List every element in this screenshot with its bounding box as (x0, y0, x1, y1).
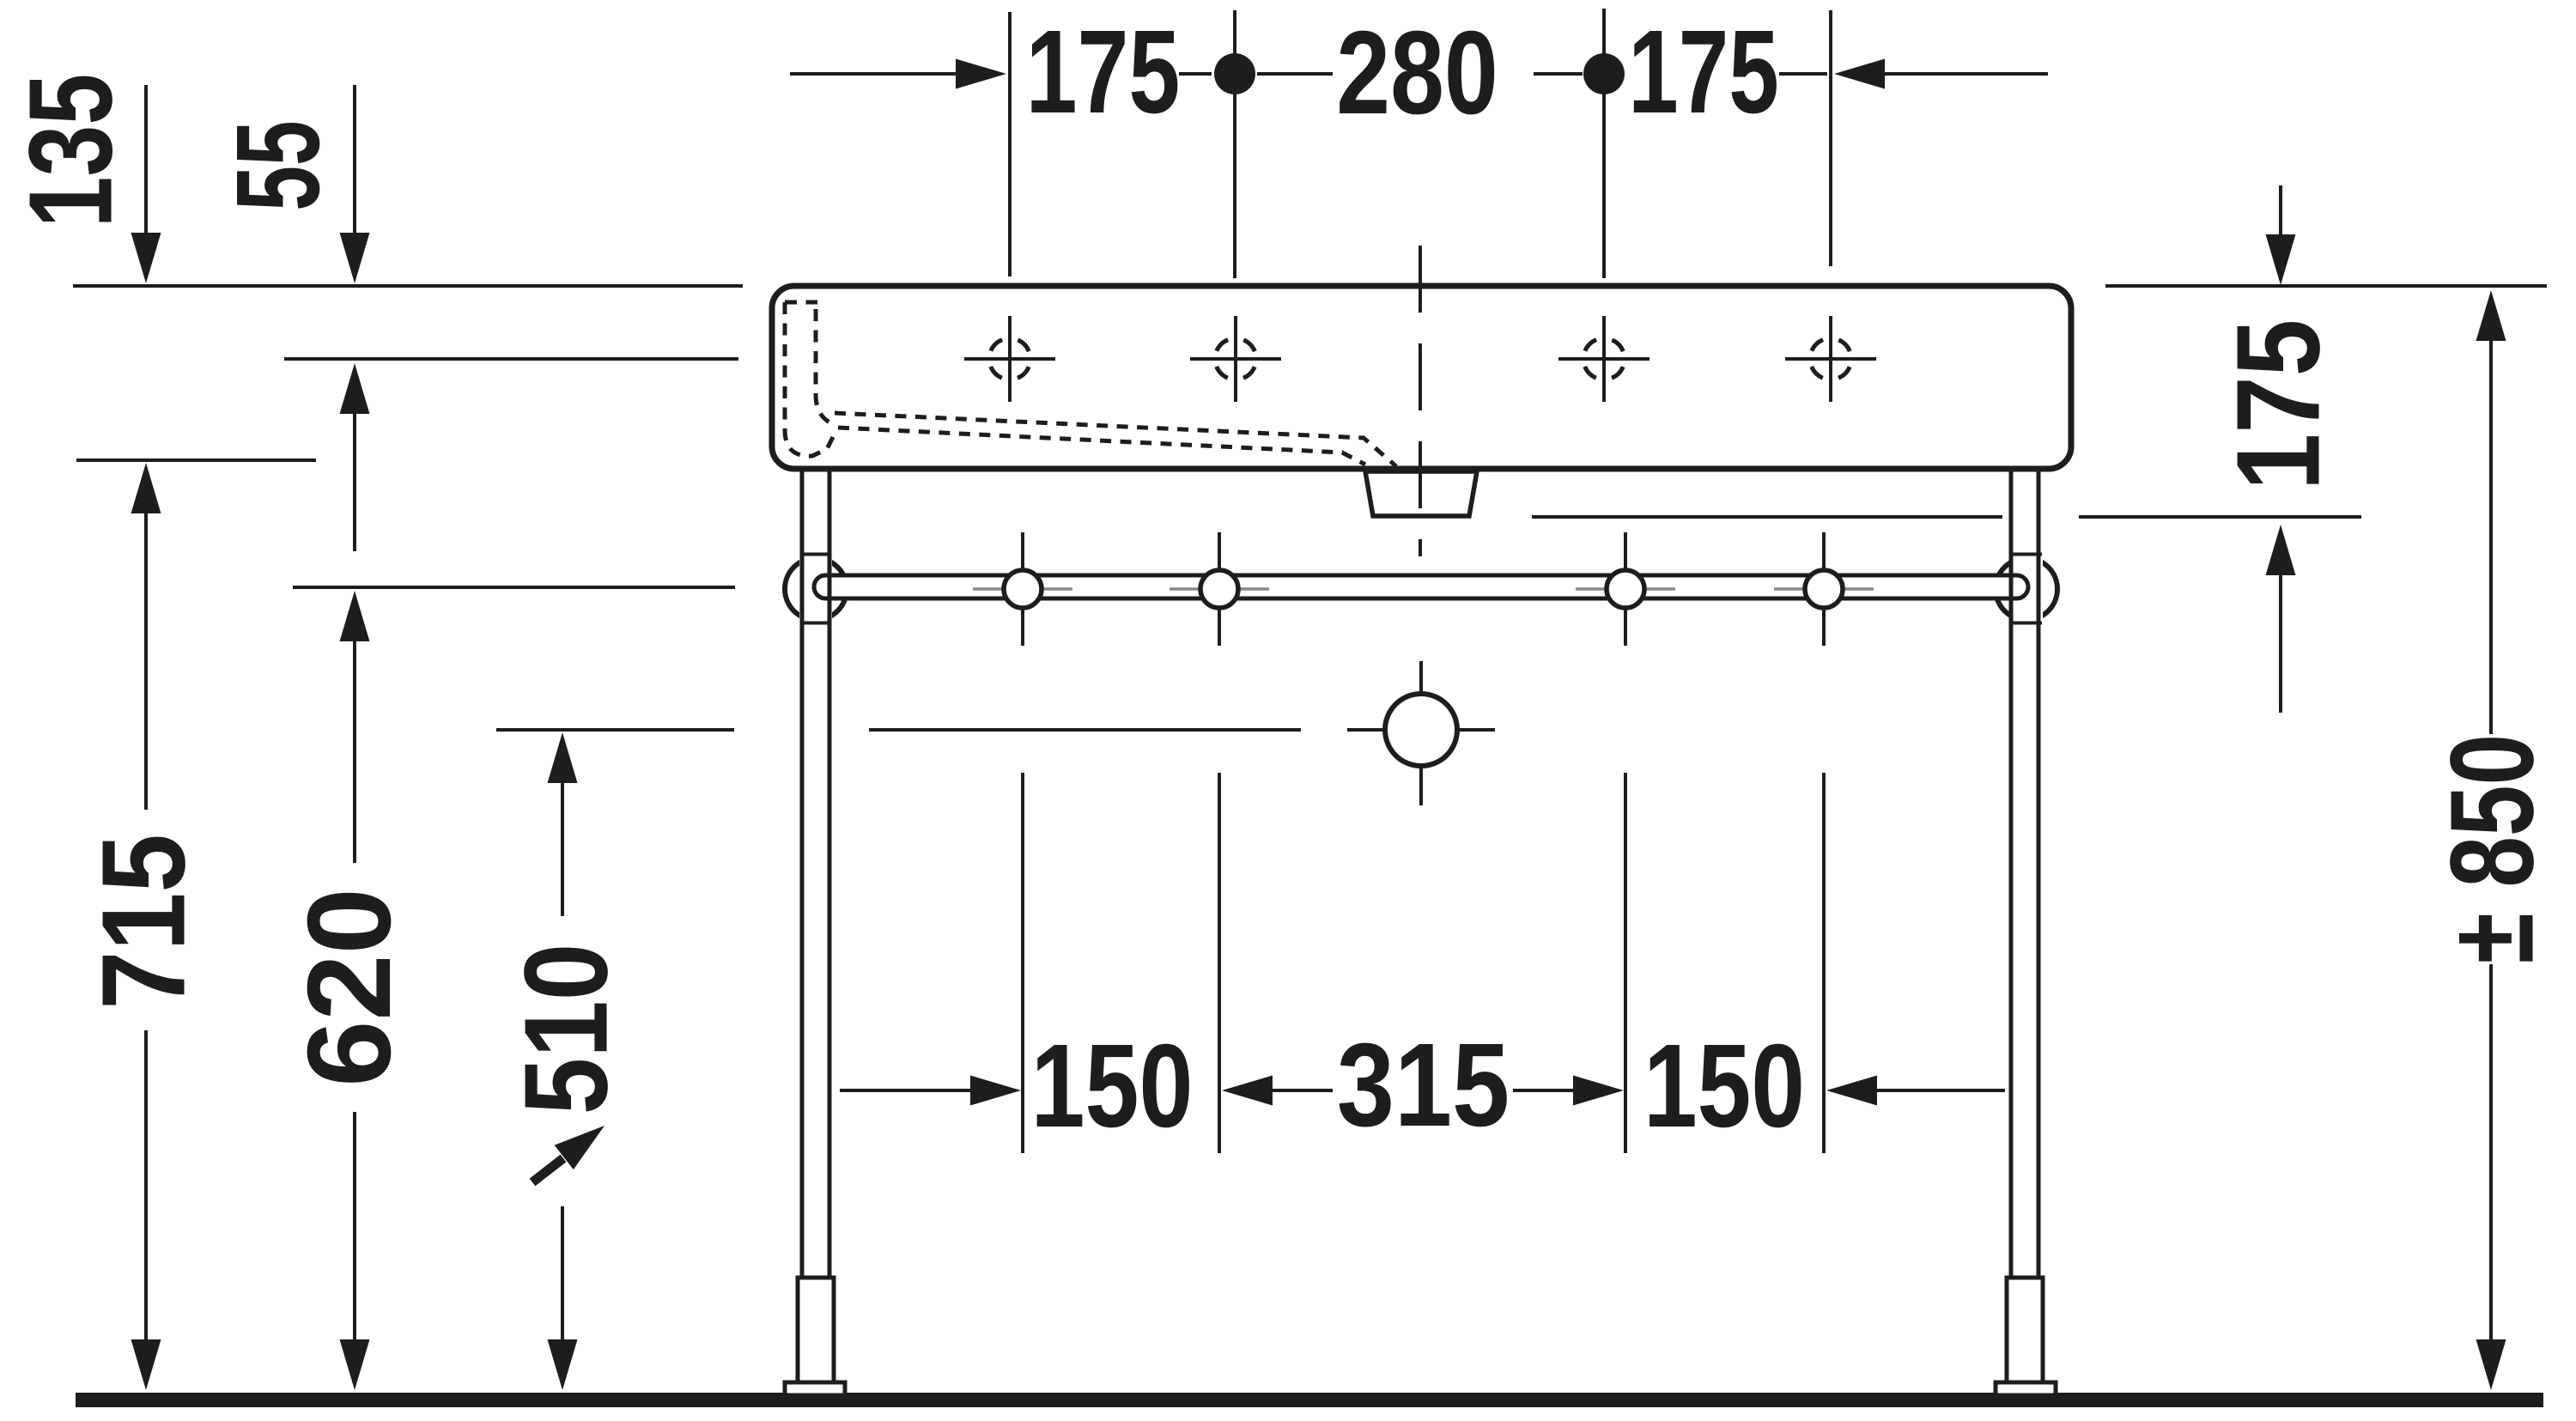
svg-text:620: 620 (283, 888, 416, 1087)
svg-text:150: 150 (1031, 1020, 1194, 1152)
svg-text:315: 315 (1337, 1019, 1510, 1151)
svg-text:280: 280 (1336, 7, 1498, 139)
svg-text:150: 150 (1643, 1020, 1805, 1152)
svg-text:± 850: ± 850 (2427, 734, 2559, 963)
svg-text:55: 55 (212, 120, 344, 210)
svg-text:175: 175 (1026, 6, 1181, 138)
svg-text:175: 175 (2213, 319, 2345, 490)
svg-text:135: 135 (5, 74, 137, 228)
svg-text:715: 715 (78, 834, 210, 1010)
svg-text:510: 510 (501, 944, 633, 1115)
svg-text:175: 175 (1628, 6, 1779, 138)
